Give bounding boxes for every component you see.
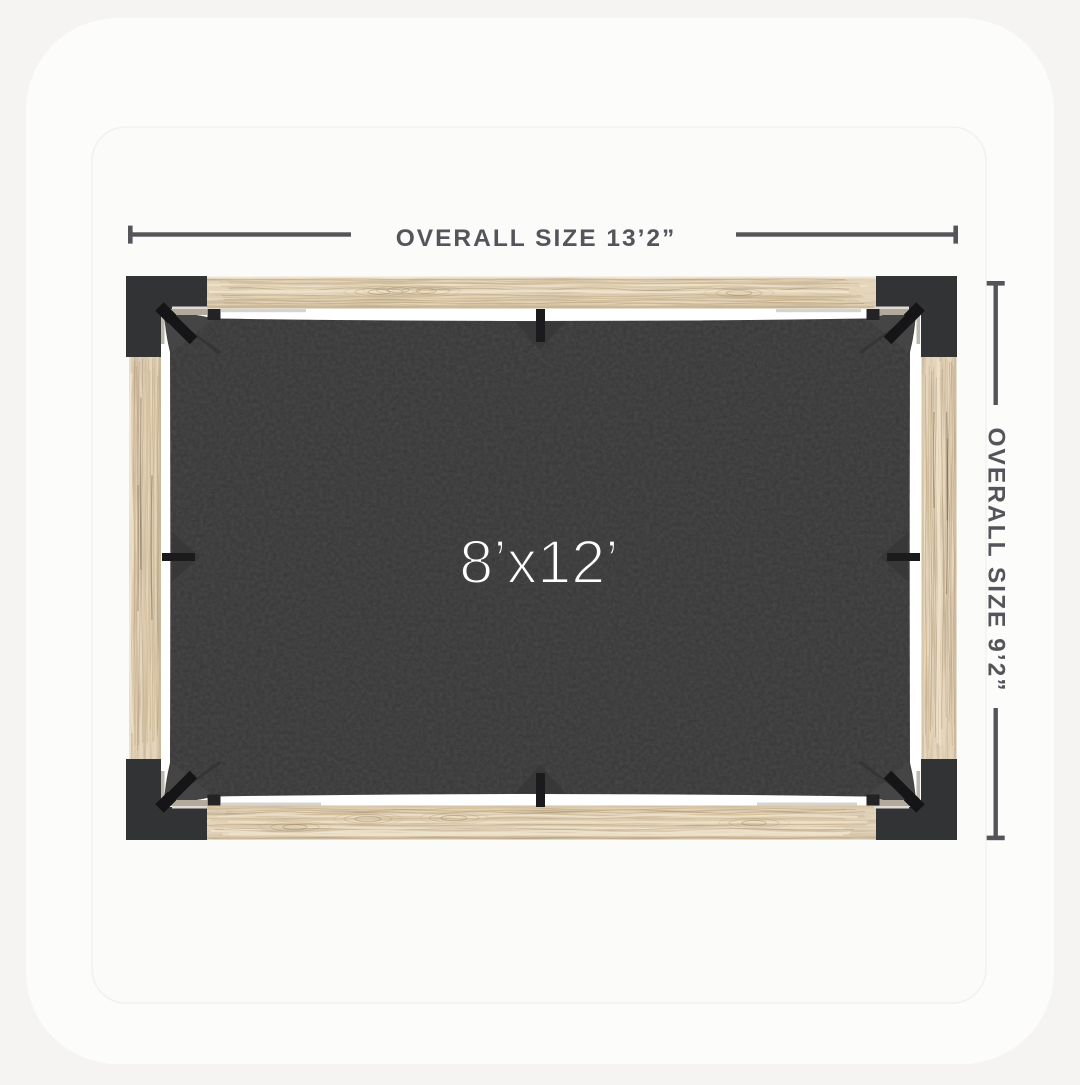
svg-text:OVERALL SIZE 13’2”: OVERALL SIZE 13’2”: [396, 225, 677, 252]
svg-text:8’x12’: 8’x12’: [459, 528, 618, 596]
svg-text:OVERALL SIZE 9’2”: OVERALL SIZE 9’2”: [983, 428, 1010, 693]
